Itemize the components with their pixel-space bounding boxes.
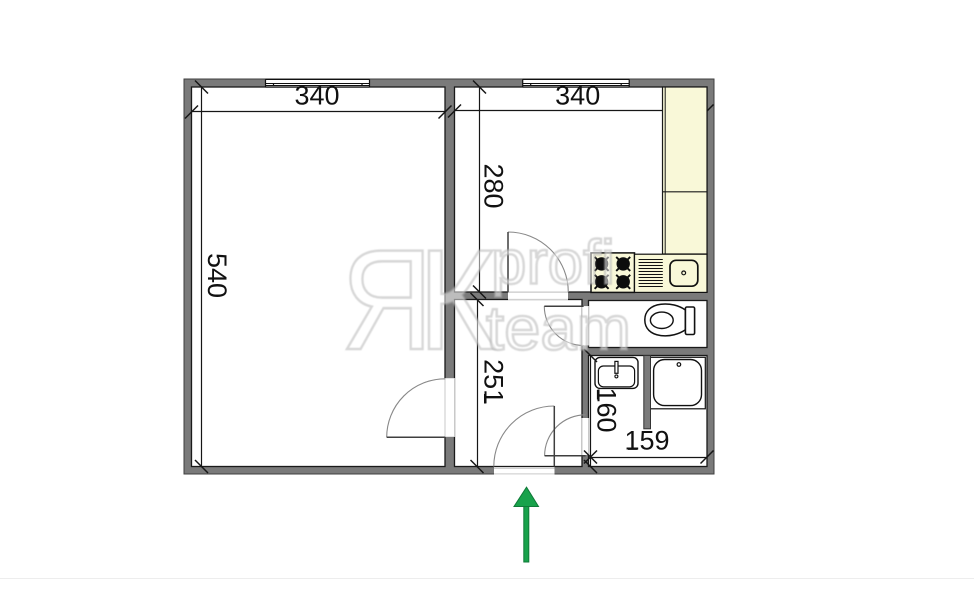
svg-text:profi: profi bbox=[491, 229, 615, 298]
svg-text:team: team bbox=[486, 295, 631, 364]
svg-text:159: 159 bbox=[624, 426, 669, 456]
svg-text:340: 340 bbox=[294, 81, 339, 111]
svg-text:540: 540 bbox=[202, 253, 232, 298]
svg-text:280: 280 bbox=[479, 163, 509, 208]
svg-text:160: 160 bbox=[591, 387, 621, 432]
svg-text:340: 340 bbox=[555, 81, 600, 111]
svg-text:К: К bbox=[418, 221, 496, 380]
